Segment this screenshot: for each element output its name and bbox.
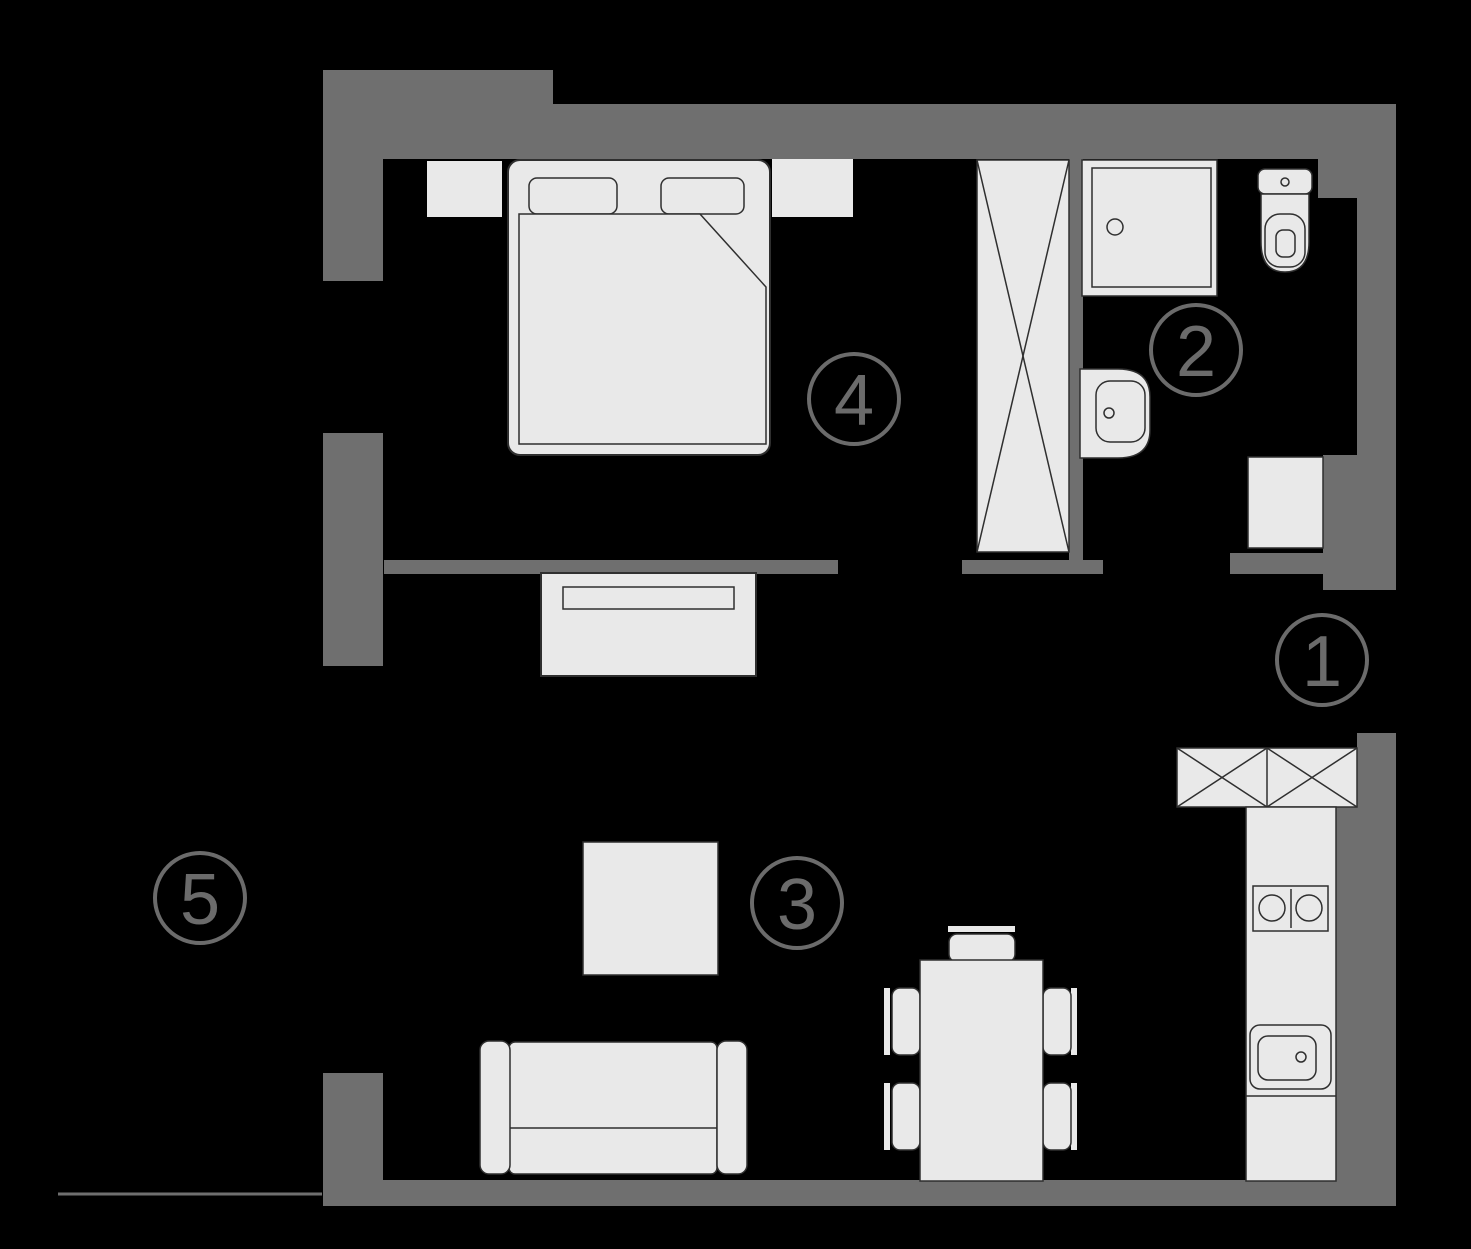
wall-shaft-block (1318, 159, 1357, 198)
kitchen-counter (1246, 807, 1336, 1181)
dining-chair-head-back (948, 926, 1015, 932)
kitchen-furniture (1177, 748, 1357, 1181)
bed-sheet-folded-corner (519, 214, 766, 444)
room-marker-3-number: 3 (777, 865, 817, 945)
dining-chair-head-seat (949, 934, 1015, 962)
room-marker-2: 2 (1151, 305, 1241, 395)
wall-wardrobe-side (1069, 153, 1083, 560)
wall-right-lower-top (1357, 733, 1396, 807)
wall-left-segment-2 (323, 433, 383, 666)
dining-chair-left1-seat (892, 988, 920, 1055)
dining-chair-right1-back (1071, 988, 1077, 1055)
dining-set (884, 926, 1077, 1181)
sofa-armrest-right (717, 1041, 747, 1174)
nightstand-right (772, 159, 853, 217)
wardrobe (977, 160, 1069, 552)
wall-bathroom-bottom (1230, 553, 1357, 574)
dining-chair-right2-seat (1043, 1083, 1071, 1150)
room-marker-1-number: 1 (1302, 622, 1342, 702)
bedroom-furniture (427, 159, 1069, 676)
room-marker-1: 1 (1277, 615, 1367, 705)
dining-chair-left1-back (884, 988, 890, 1055)
room-marker-4: 4 (809, 354, 899, 444)
room-marker-5-number: 5 (180, 860, 220, 940)
shower-tray (1082, 160, 1217, 296)
room-marker-5: 5 (155, 853, 245, 943)
wall-interior-hall (962, 560, 1103, 574)
tv-stand (541, 573, 756, 676)
nightstand-left (427, 161, 502, 217)
wall-left-segment-1 (323, 70, 383, 281)
bed-pillow-right (661, 178, 744, 214)
room-marker-4-number: 4 (834, 361, 874, 441)
wall-bottom (383, 1180, 1396, 1206)
dining-chair-right2-back (1071, 1083, 1077, 1150)
floor-plan: 1 2 3 4 5 (0, 0, 1471, 1249)
wall-top-right (553, 104, 1396, 159)
floor-plan-canvas: 1 2 3 4 5 (0, 0, 1471, 1249)
toilet (1258, 169, 1312, 272)
coffee-table (583, 842, 718, 975)
kitchen-upper-cabinets (1177, 748, 1357, 807)
toilet-tank (1258, 169, 1312, 194)
wall-right-lower (1336, 807, 1396, 1180)
sofa-armrest-left (480, 1041, 510, 1174)
bathroom-sink-body (1080, 369, 1150, 458)
dining-chair-left2-back (884, 1083, 890, 1150)
dining-table (920, 960, 1043, 1181)
wall-interior-bedroom (384, 560, 838, 574)
wall-right-upper (1357, 104, 1396, 590)
bathroom-sink (1080, 369, 1150, 458)
shower (1082, 160, 1217, 296)
wall-left-segment-3 (323, 1073, 383, 1206)
bed-pillow-left (529, 178, 617, 214)
kitchen-sink (1250, 1025, 1331, 1089)
sofa-body (509, 1042, 717, 1174)
dining-chair-right1-seat (1043, 988, 1071, 1055)
room-marker-2-number: 2 (1176, 312, 1216, 392)
dining-chair-left2-seat (892, 1083, 920, 1150)
sofa (480, 1041, 747, 1174)
washing-machine (1248, 457, 1323, 548)
room-marker-3: 3 (752, 858, 842, 948)
